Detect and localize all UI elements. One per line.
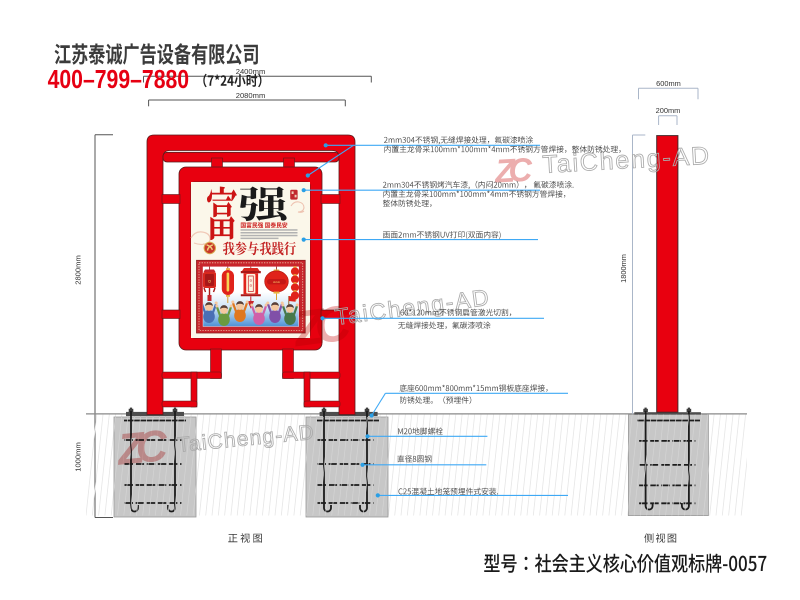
svg-text:200mm: 200mm	[656, 106, 681, 115]
svg-text:600mm: 600mm	[656, 79, 681, 88]
svg-text:¤¤¤: ¤¤¤	[273, 280, 280, 285]
svg-text:400–799–7880: 400–799–7880	[48, 66, 190, 94]
svg-text:1800mm: 1800mm	[619, 254, 628, 283]
svg-text:2080mm: 2080mm	[236, 91, 266, 100]
svg-text:¤: ¤	[250, 283, 253, 288]
svg-text:2800mm: 2800mm	[74, 255, 83, 285]
svg-text:¤: ¤	[208, 279, 211, 285]
svg-text:1000mm: 1000mm	[74, 442, 83, 472]
